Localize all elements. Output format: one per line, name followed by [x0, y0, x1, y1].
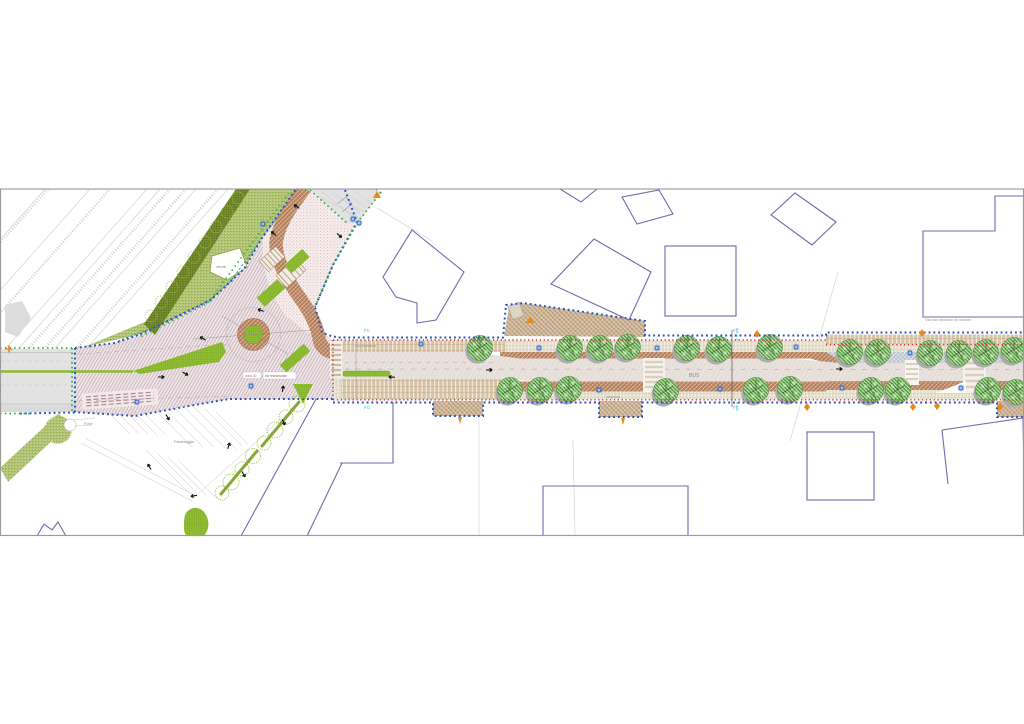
svg-text:FC: FC [364, 405, 371, 410]
svg-text:xxxxxxx: xxxxxxx [606, 394, 620, 399]
svg-text:FC: FC [364, 328, 371, 333]
svg-text:F.nte: F.nte [84, 421, 93, 426]
svg-text:FC: FC [733, 405, 740, 410]
svg-text:BUS: BUS [689, 373, 700, 379]
svg-text:zona 30: zona 30 [245, 374, 257, 378]
svg-text:via residenziale: via residenziale [265, 374, 287, 378]
svg-text:verde: verde [216, 264, 227, 269]
svg-text:Via xxx xxxxxxx xx xxxxxx: Via xxx xxxxxxx xx xxxxxx [925, 317, 971, 322]
svg-text:Parcheggio: Parcheggio [174, 439, 195, 444]
svg-text:xxx xxxxxxx: xxx xxxxxxx [355, 343, 376, 348]
svg-text:FC: FC [733, 328, 740, 333]
